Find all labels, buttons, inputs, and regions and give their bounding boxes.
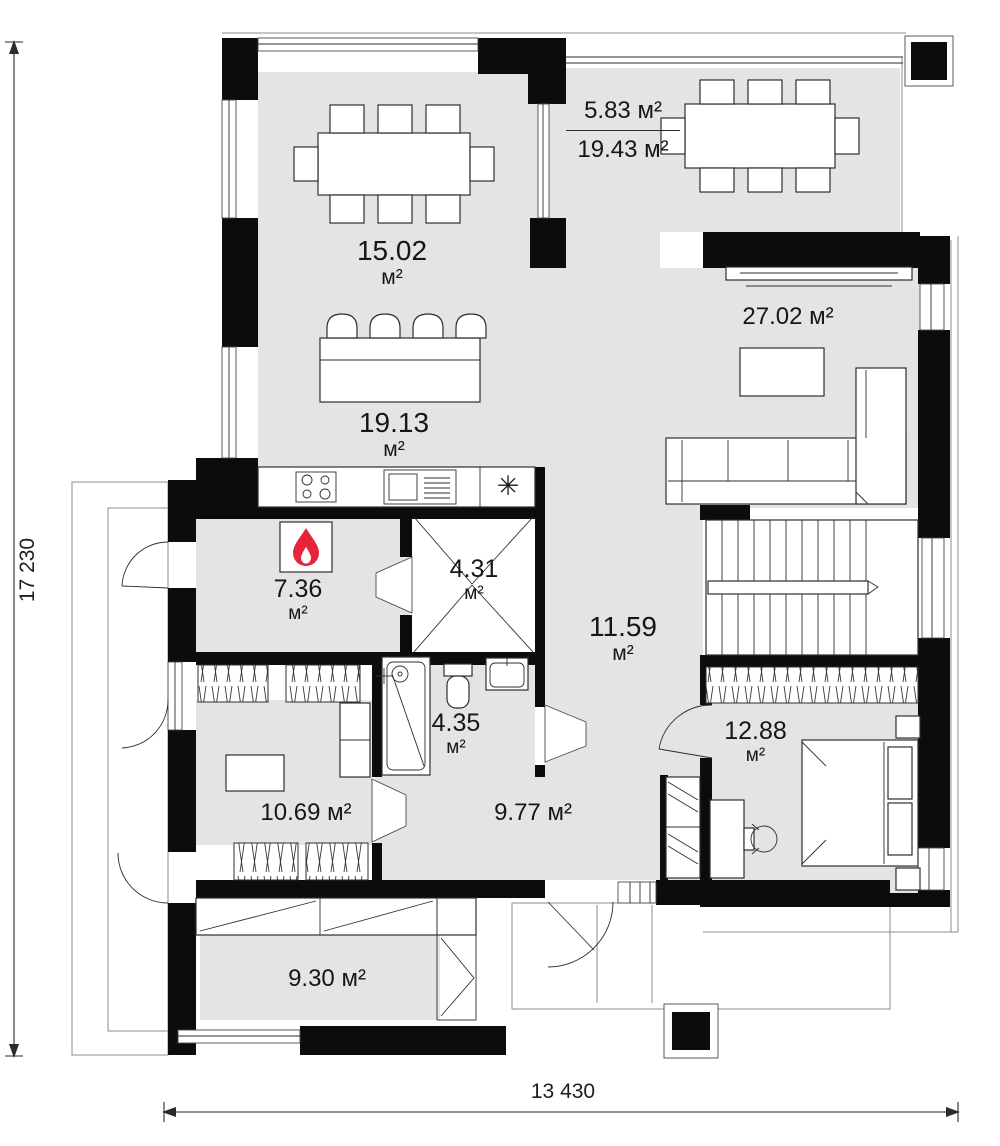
dimension-line-horizontal — [162, 1102, 960, 1122]
hall-bookshelf — [666, 777, 700, 878]
room-label-hallway: 9.77 м² — [453, 800, 613, 826]
room-label-hall-center: 11.59 м² — [558, 612, 688, 666]
office-cabinet — [340, 703, 370, 777]
coffee-table — [740, 348, 824, 396]
dimension-label-horizontal: 13 430 — [483, 1080, 643, 1104]
staircase — [706, 520, 918, 655]
room-label-living: 27.02 м² — [698, 304, 878, 330]
bathroom-sink — [486, 658, 528, 690]
room-label-terrace: 5.83 м² 19.43 м² — [566, 98, 680, 163]
floor-plan: 15.02 м² 5.83 м² 19.43 м² 27.02 м² 19.13… — [0, 0, 1000, 1146]
room-label-wardrobe: 4.31 м² — [419, 556, 529, 605]
room-label-bedroom: 12.88 м² — [698, 718, 813, 767]
bed — [802, 716, 920, 890]
room-label-bathroom: 4.35 м² — [406, 710, 506, 759]
fridge-asterisk-icon: ✳ — [486, 471, 530, 502]
room-label-dining: 15.02 м² — [322, 236, 462, 290]
bedroom-wardrobe — [706, 667, 918, 703]
office-desk — [226, 755, 284, 791]
room-label-storage: 9.30 м² — [237, 966, 417, 992]
porch-column — [664, 1004, 718, 1058]
room-label-office: 10.69 м² — [216, 800, 396, 826]
room-label-kitchen: 19.13 м² — [324, 408, 464, 462]
boiler — [280, 522, 332, 572]
room-label-boiler: 7.36 м² — [238, 576, 358, 625]
dimension-label-vertical: 17 230 — [16, 515, 44, 625]
pillar — [905, 36, 953, 86]
toilet-icon — [444, 664, 472, 708]
